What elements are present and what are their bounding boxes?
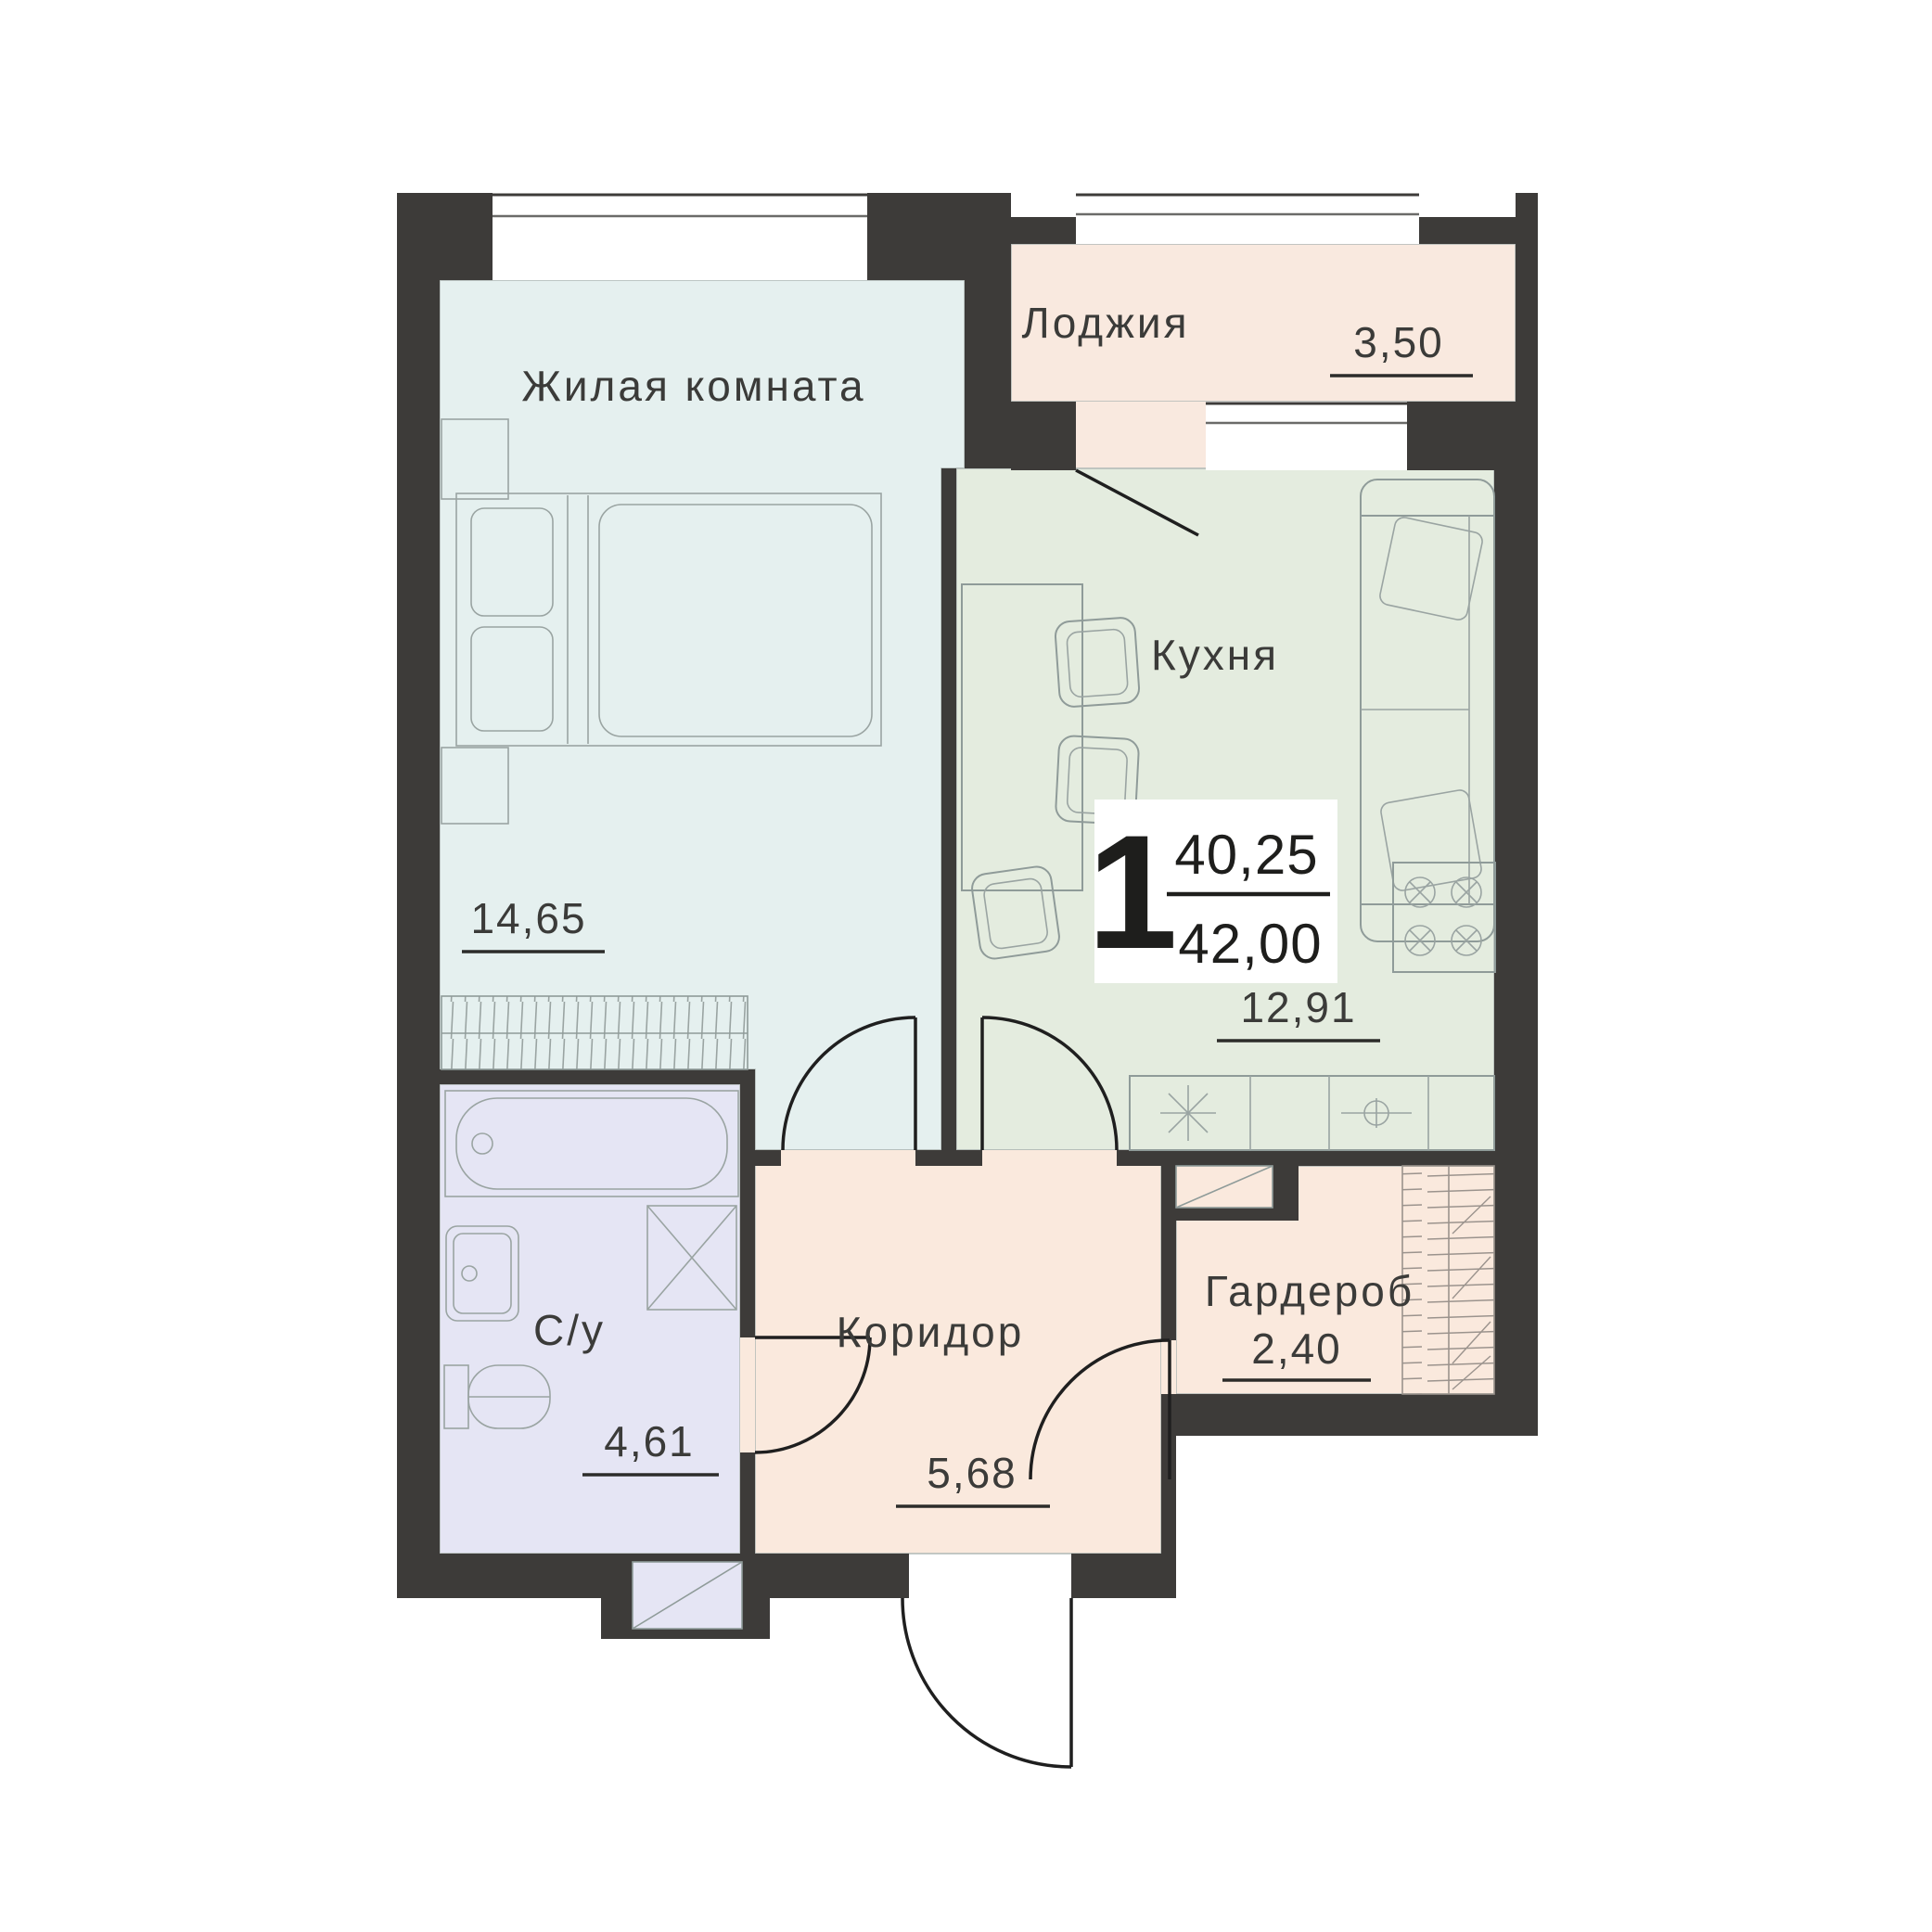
opening-bath-door (740, 1337, 755, 1452)
wall-loggia-bottom-right (1407, 402, 1516, 470)
floor-plan: Жилая комната 14,65 Лоджия 3,50 Кухня 12… (0, 0, 1932, 1932)
kitchen-area: 12,91 (1240, 983, 1356, 1031)
wall-living-loggia (965, 280, 1011, 468)
wardrobe-label: Гардероб (1205, 1267, 1414, 1315)
wall-corridor-top-1 (755, 1150, 781, 1166)
ventilation-shaft-bath (633, 1562, 742, 1629)
wardrobe-area: 2,40 (1251, 1324, 1342, 1373)
wardrobe-shelving (1402, 1166, 1494, 1394)
living-room-area: 14,65 (470, 894, 586, 942)
wall-bottom-corridor-2 (1071, 1554, 1176, 1598)
loggia-doorway-floor (1076, 402, 1206, 470)
badge-rooms-count: 1 (1087, 802, 1177, 983)
opening-living-door (781, 1150, 915, 1166)
bathroom-area: 4,61 (604, 1417, 695, 1465)
window-loggia (1076, 193, 1419, 244)
window-living (493, 193, 867, 280)
wall-bath-right-upper (740, 1069, 755, 1337)
wall-bottom-bath (397, 1554, 601, 1598)
opening-kitchen-door (982, 1150, 1117, 1166)
corridor-area: 5,68 (927, 1449, 1017, 1497)
wall-wardrobe-bottom (1161, 1394, 1538, 1436)
loggia-area: 3,50 (1353, 318, 1444, 366)
wall-bath-top (397, 1069, 755, 1084)
door-entry (902, 1598, 1071, 1767)
window-loggia-kitchen (1206, 402, 1407, 470)
bathroom-label: С/у (533, 1306, 606, 1354)
corridor-label: Коридор (837, 1308, 1025, 1356)
wall-loggia-bottom-left (1011, 402, 1076, 470)
closet-hatch (441, 996, 748, 1069)
wall-corridor-top-2 (915, 1150, 982, 1166)
wall-wardrobe-left (1161, 1221, 1176, 1340)
wall-kitchen-right (1494, 402, 1538, 1436)
wall-top-corner (397, 193, 493, 280)
loggia-label: Лоджия (1022, 299, 1190, 347)
sink-star-icon (1160, 1085, 1216, 1141)
apartment-info-badge: 1 40,25 42,00 (1087, 800, 1337, 983)
wall-bottom-corridor-1 (770, 1554, 909, 1598)
ventilation-shaft-kitchen (1176, 1166, 1273, 1208)
living-room-label: Жилая комната (521, 362, 865, 410)
badge-area-upper: 40,25 (1174, 824, 1318, 886)
badge-area-lower: 42,00 (1178, 913, 1322, 975)
kitchen-label: Кухня (1151, 631, 1279, 679)
wall-left (397, 193, 440, 1598)
wall-living-kitchen (941, 468, 956, 1150)
wall-loggia-right (1516, 193, 1538, 424)
wall-top-mid (867, 193, 1011, 280)
wall-bath-right-lower (740, 1452, 755, 1554)
